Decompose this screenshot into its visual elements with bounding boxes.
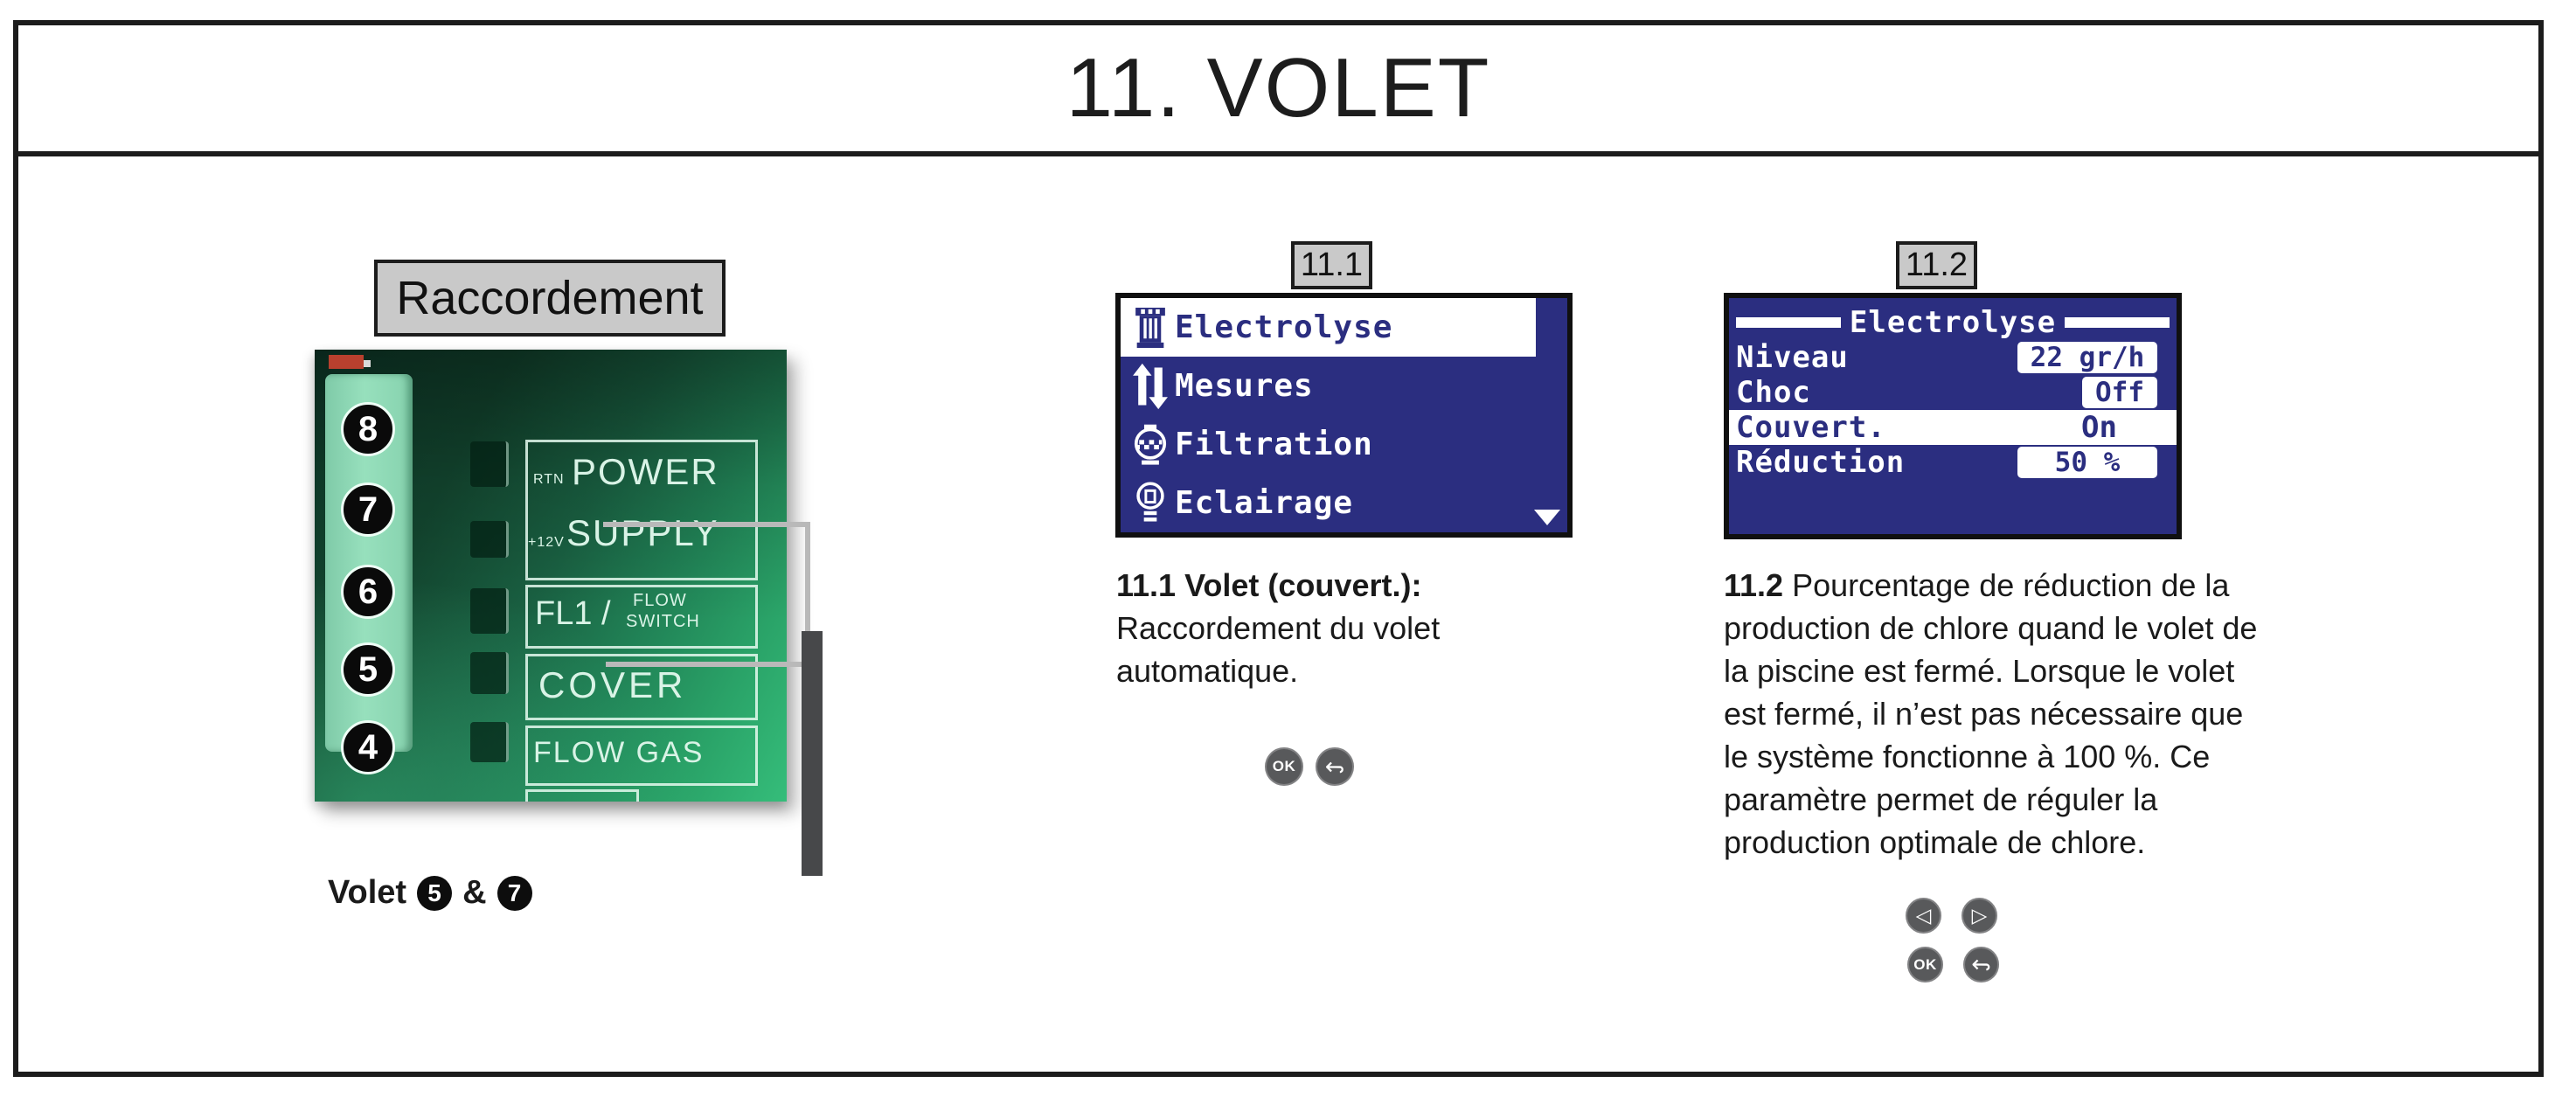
title-band: 11. VOLET xyxy=(18,25,2538,156)
lcd-screen-title: Electrolyse xyxy=(1841,305,2065,340)
param-label: Niveau xyxy=(1736,340,1849,375)
filtration-icon xyxy=(1126,422,1175,468)
figure-11-2-lead: 11.2 xyxy=(1724,567,1792,603)
figure-11-2-tag-box: 11.2 xyxy=(1896,241,1977,289)
figure-11-2-description: 11.2 Pourcentage de réduction de la prod… xyxy=(1724,564,2273,864)
raccordement-label-box: Raccordement xyxy=(374,260,726,337)
pcb-photo: 8 7 6 5 4 RTN POWER +12V SUPPLY FL1 / FL… xyxy=(315,350,787,802)
caption-terminal-7-badge: 7 xyxy=(497,876,532,911)
partial-silkscreen-box xyxy=(525,789,639,802)
terminal-4-badge: 4 xyxy=(341,720,395,774)
figure-11-1-tag-box: 11.1 xyxy=(1291,241,1372,289)
param-label: Couvert. xyxy=(1736,410,1886,445)
menu-label: Filtration xyxy=(1175,427,1373,462)
pcb-component xyxy=(329,355,364,369)
measures-arrows-icon xyxy=(1126,362,1175,411)
back-button: ↩ xyxy=(1316,747,1354,786)
figure-11-1-tag: 11.1 xyxy=(1301,246,1363,284)
terminal-7-badge: 7 xyxy=(341,483,395,537)
figure-11-2-tag: 11.2 xyxy=(1906,246,1968,284)
cover-cable-bar xyxy=(802,631,823,876)
back-arrow-icon: ↩ xyxy=(1325,755,1345,779)
menu-item-electrolyse: Electrolyse xyxy=(1121,298,1536,357)
menu-item-eclairage: Eclairage xyxy=(1121,474,1567,532)
scroll-down-icon xyxy=(1534,510,1560,525)
menu-item-mesures: Mesures xyxy=(1121,357,1567,415)
lighting-bulb-icon xyxy=(1126,479,1175,528)
switch-silkscreen: SWITCH xyxy=(626,612,700,632)
ok-button: OK xyxy=(1265,747,1303,786)
title-bar-right xyxy=(2065,317,2170,328)
param-value: Off xyxy=(2082,377,2157,408)
param-row-reduction: Réduction 50 % xyxy=(1729,445,2177,480)
figure-11-1-body: Raccordement du volet automatique. xyxy=(1116,607,1536,692)
connector-slot xyxy=(470,441,509,487)
terminal-6-badge: 6 xyxy=(341,565,395,619)
param-row-couvert: Couvert. On xyxy=(1729,410,2177,445)
caption-terminal-5-badge: 5 xyxy=(417,876,452,911)
triangle-left-icon: ◁ xyxy=(1916,904,1932,927)
param-row-choc: Choc Off xyxy=(1729,375,2177,410)
connector-slot xyxy=(470,652,509,694)
photo-caption: Volet 5 & 7 xyxy=(328,874,532,912)
param-label: Choc xyxy=(1736,375,1811,410)
cover-silkscreen: COVER xyxy=(538,664,686,706)
power-silkscreen: POWER xyxy=(572,451,719,493)
rtn-silkscreen: RTN xyxy=(533,472,565,488)
terminal-8-badge: 8 xyxy=(341,402,395,456)
menu-label: Eclairage xyxy=(1175,485,1353,521)
title-bar-left xyxy=(1736,317,1841,328)
flow-gas-silkscreen: FLOW GAS xyxy=(533,736,704,770)
supply-callout-line xyxy=(603,522,810,527)
supply-silkscreen: SUPPLY xyxy=(566,512,719,554)
lcd-screen-11-2: Electrolyse Niveau 22 gr/h Choc Off Couv… xyxy=(1724,293,2182,539)
menu-label: Electrolyse xyxy=(1175,309,1392,345)
cover-callout-line xyxy=(606,662,802,667)
ok-button-label: OK xyxy=(1273,758,1296,775)
connector-slot xyxy=(470,722,509,762)
figure-11-1-description: 11.1 Volet (couvert.): Raccordement du v… xyxy=(1116,564,1536,692)
param-value: 22 gr/h xyxy=(2017,342,2157,373)
manual-page: 11. VOLET Raccordement 8 7 6 5 4 RTN POW… xyxy=(0,0,2576,1097)
back-button: ↩ xyxy=(1963,947,1999,982)
menu-label: Mesures xyxy=(1175,368,1314,404)
figure-11-2-body: Pourcentage de réduction de la productio… xyxy=(1724,567,2257,860)
previous-button: ◁ xyxy=(1906,898,1941,934)
figure-11-1-heading: 11.1 Volet (couvert.): xyxy=(1116,564,1536,607)
raccordement-label: Raccordement xyxy=(396,271,703,325)
connector-slot xyxy=(470,521,509,558)
param-value: 50 % xyxy=(2017,447,2157,478)
terminal-5-badge: 5 xyxy=(341,642,395,697)
lcd-screen-11-1: Electrolyse Mesures Filtrat xyxy=(1115,293,1573,538)
caption-label: Volet xyxy=(328,874,406,912)
electrolysis-icon xyxy=(1126,303,1175,352)
supply-callout-line-vertical xyxy=(805,522,810,634)
ok-button: OK xyxy=(1907,947,1943,982)
triangle-right-icon: ▷ xyxy=(1972,904,1988,927)
next-button: ▷ xyxy=(1962,898,1997,934)
page-title: 11. VOLET xyxy=(1066,40,1491,136)
flow-silkscreen: FLOW xyxy=(633,591,687,611)
back-arrow-icon: ↩ xyxy=(1971,953,1991,976)
caption-ampersand: & xyxy=(462,874,486,912)
lcd-screen-title-row: Electrolyse xyxy=(1736,307,2170,338)
fl1-silkscreen: FL1 / xyxy=(535,595,611,633)
plus12v-silkscreen: +12V xyxy=(528,535,565,551)
connector-slot xyxy=(470,588,509,634)
param-value: On xyxy=(2081,410,2117,445)
menu-item-filtration: Filtration xyxy=(1121,415,1567,474)
param-row-niveau: Niveau 22 gr/h xyxy=(1729,340,2177,375)
param-label: Réduction xyxy=(1736,445,1905,480)
ok-button-label: OK xyxy=(1913,956,1937,974)
